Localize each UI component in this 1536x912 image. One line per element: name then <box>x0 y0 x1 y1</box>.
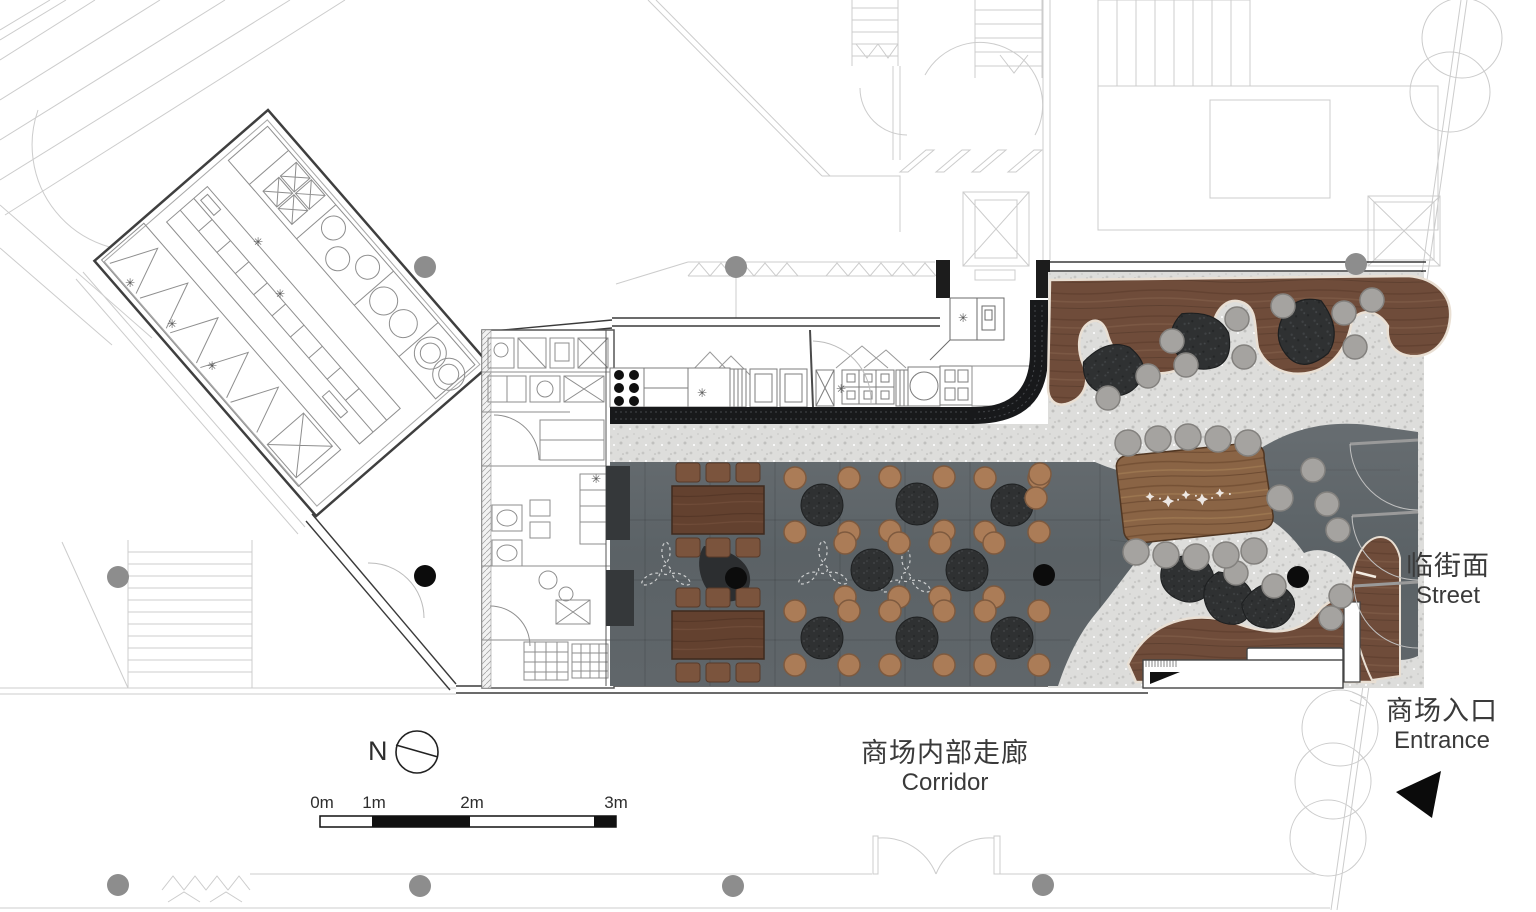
communal-table <box>1115 442 1274 544</box>
chair <box>933 466 955 488</box>
stool <box>1205 426 1231 452</box>
svg-text:✳: ✳ <box>167 317 177 331</box>
floor-plan-canvas: ✳✳✳ ✳✳ ✳✳ ✳✳ <box>0 0 1536 912</box>
stool <box>1145 426 1171 452</box>
table-top <box>801 617 843 659</box>
stool <box>1183 544 1209 570</box>
corridor-label-zh: 商场内部走廊 <box>855 738 1035 769</box>
chair <box>879 654 901 676</box>
chair <box>706 463 730 482</box>
chair <box>706 588 730 607</box>
column-marker <box>1032 874 1054 896</box>
stool <box>1213 542 1239 568</box>
stool <box>1096 386 1120 410</box>
corridor-label: 商场内部走廊 Corridor <box>855 738 1035 797</box>
column-marker <box>722 875 744 897</box>
entrance-arrow-icon <box>1396 771 1441 818</box>
north-arrow <box>396 731 438 773</box>
stool <box>1267 485 1293 511</box>
chair <box>879 466 901 488</box>
chair <box>888 532 910 554</box>
chair <box>784 467 806 489</box>
chair <box>676 663 700 682</box>
chair <box>706 663 730 682</box>
chair <box>933 654 955 676</box>
stool <box>1315 492 1339 516</box>
chair <box>1028 521 1050 543</box>
svg-text:✳: ✳ <box>697 386 707 400</box>
stool <box>1123 539 1149 565</box>
stool <box>1343 335 1367 359</box>
table-top <box>851 549 893 591</box>
stool <box>1326 518 1350 542</box>
table-top <box>896 617 938 659</box>
stool <box>1025 487 1047 509</box>
chair <box>834 532 856 554</box>
svg-text:✳: ✳ <box>207 359 217 373</box>
table-top <box>896 483 938 525</box>
chair <box>736 588 760 607</box>
street-label-zh: 临街面 <box>1388 551 1508 582</box>
north-label: N <box>368 736 388 767</box>
chair <box>983 532 1005 554</box>
service-station <box>606 570 634 626</box>
long-dining-table <box>672 588 764 682</box>
street-label: 临街面 Street <box>1388 551 1508 610</box>
column-marker <box>725 256 747 278</box>
long-dining-table <box>672 463 764 557</box>
chair <box>736 463 760 482</box>
service-rooms <box>482 330 614 688</box>
chair <box>879 600 901 622</box>
stool <box>1319 606 1343 630</box>
table-top <box>672 486 764 534</box>
entrance-label-zh: 商场入口 <box>1376 696 1508 727</box>
stool <box>1329 584 1353 608</box>
svg-text:✳: ✳ <box>125 276 135 290</box>
cook-counter <box>610 330 1030 407</box>
wall-stub <box>936 260 950 298</box>
stool <box>1232 345 1256 369</box>
stool <box>1136 364 1160 388</box>
chair <box>784 654 806 676</box>
wall-stub <box>1036 260 1050 298</box>
chair <box>676 538 700 557</box>
terrazzo-aisle <box>610 424 1105 462</box>
column-marker <box>1287 566 1309 588</box>
stool <box>1235 430 1261 456</box>
corridor-label-en: Corridor <box>855 769 1035 797</box>
chair <box>838 654 860 676</box>
chair <box>736 538 760 557</box>
scale-tick-1: 1m <box>354 793 394 813</box>
stool <box>1174 353 1198 377</box>
chair <box>784 521 806 543</box>
table-top <box>946 549 988 591</box>
column-marker <box>107 874 129 896</box>
scale-bar <box>320 816 616 827</box>
column-marker <box>414 565 436 587</box>
chair <box>933 600 955 622</box>
stool <box>1153 542 1179 568</box>
chair <box>974 654 996 676</box>
column-marker <box>409 875 431 897</box>
kitchen-wing <box>94 110 489 516</box>
svg-text:✳: ✳ <box>275 287 285 301</box>
chair <box>974 600 996 622</box>
scale-tick-2: 2m <box>452 793 492 813</box>
chair <box>838 467 860 489</box>
entrance-label-en: Entrance <box>1376 727 1508 755</box>
table-top <box>672 611 764 659</box>
column-marker <box>725 567 747 589</box>
chair <box>706 538 730 557</box>
column-marker <box>1345 253 1367 275</box>
floor-plan-page: ✳✳✳ ✳✳ ✳✳ ✳✳ 临街面 Street 商场入口 Entrance 商场… <box>0 0 1536 912</box>
chair <box>676 588 700 607</box>
service-station <box>606 466 630 540</box>
stool <box>1332 301 1356 325</box>
scale-tick-3: 3m <box>596 793 636 813</box>
chair <box>676 463 700 482</box>
stool <box>1225 307 1249 331</box>
svg-text:✳: ✳ <box>253 235 263 249</box>
column-marker <box>107 566 129 588</box>
stool <box>1271 294 1295 318</box>
stool <box>1029 463 1051 485</box>
street-label-en: Street <box>1388 582 1508 610</box>
stool <box>1241 538 1267 564</box>
svg-text:✳: ✳ <box>836 382 846 396</box>
chair <box>929 532 951 554</box>
corner-rooms <box>930 298 1004 360</box>
chair <box>838 600 860 622</box>
table-top <box>991 617 1033 659</box>
svg-text:✳: ✳ <box>591 472 601 486</box>
table-top <box>801 484 843 526</box>
entrance-label: 商场入口 Entrance <box>1376 696 1508 755</box>
stool <box>1160 329 1184 353</box>
chair <box>1028 654 1050 676</box>
column-marker <box>414 256 436 278</box>
stool <box>1262 574 1286 598</box>
chair <box>736 663 760 682</box>
chair <box>974 467 996 489</box>
chair <box>1028 600 1050 622</box>
stool <box>1115 430 1141 456</box>
scale-tick-0: 0m <box>302 793 342 813</box>
chair <box>784 600 806 622</box>
stool <box>1301 458 1325 482</box>
svg-text:✳: ✳ <box>958 311 968 325</box>
stool <box>1360 288 1384 312</box>
column-marker <box>1033 564 1055 586</box>
stool <box>1175 424 1201 450</box>
